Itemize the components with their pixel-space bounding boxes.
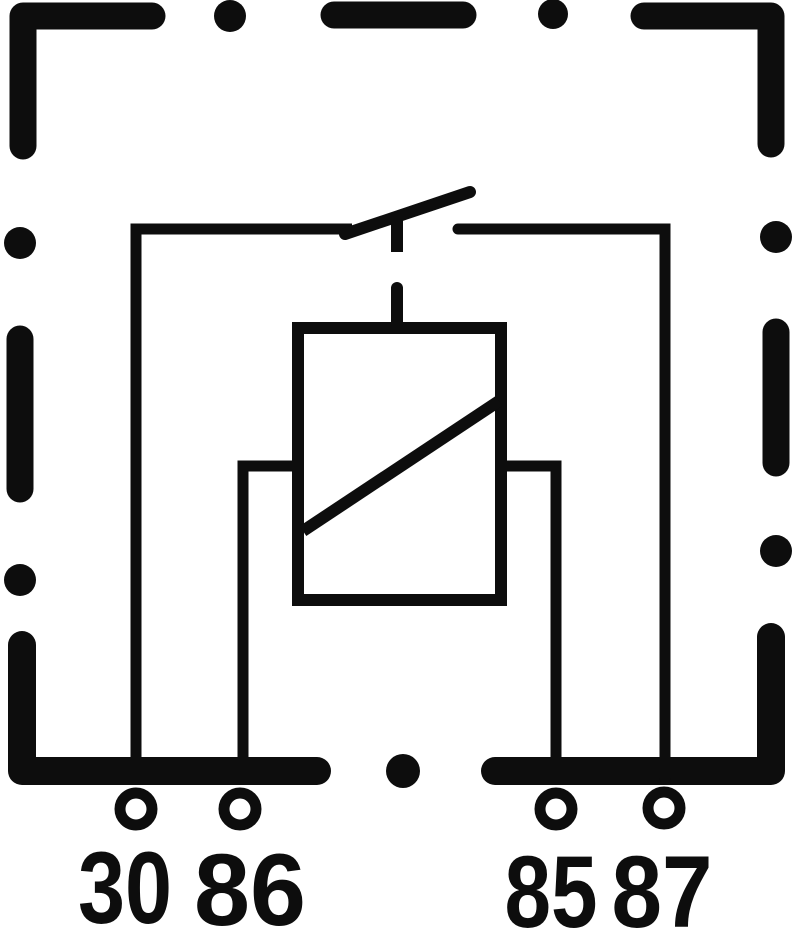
housing-corner-top-left	[23, 16, 152, 146]
housing-dot-bottom	[386, 754, 420, 788]
terminal-86-wire	[243, 466, 297, 778]
terminal-label-87: 87	[612, 835, 713, 932]
terminal-labels: 30 86 85 87	[78, 831, 713, 932]
housing-dot-left-2	[4, 564, 36, 596]
switch-arm	[345, 192, 470, 234]
housing-dot-right-2	[760, 535, 792, 567]
terminal-label-30: 30	[78, 831, 172, 932]
housing-corner-top-right	[644, 16, 771, 144]
terminal-pin-85	[540, 793, 572, 825]
housing-corner-bottom-right	[495, 637, 771, 771]
housing-corner-bottom-left	[22, 645, 317, 771]
terminal-pin-87	[648, 792, 680, 824]
housing-dot-top-2	[538, 0, 568, 29]
terminal-85-wire	[501, 466, 556, 778]
terminal-pins	[120, 792, 680, 825]
terminal-pin-86	[224, 793, 256, 825]
housing-dot-right-1	[760, 221, 792, 253]
housing-dot-top-1	[214, 0, 246, 32]
terminal-label-86: 86	[194, 833, 306, 932]
housing-dot-left-1	[4, 227, 36, 259]
terminal-label-85: 85	[505, 835, 598, 932]
relay-wiring-diagram: 30 86 85 87	[0, 0, 800, 932]
internal-circuit	[136, 192, 665, 778]
terminal-pin-30	[120, 793, 152, 825]
relay-schematic-page: 30 86 85 87	[0, 0, 800, 932]
